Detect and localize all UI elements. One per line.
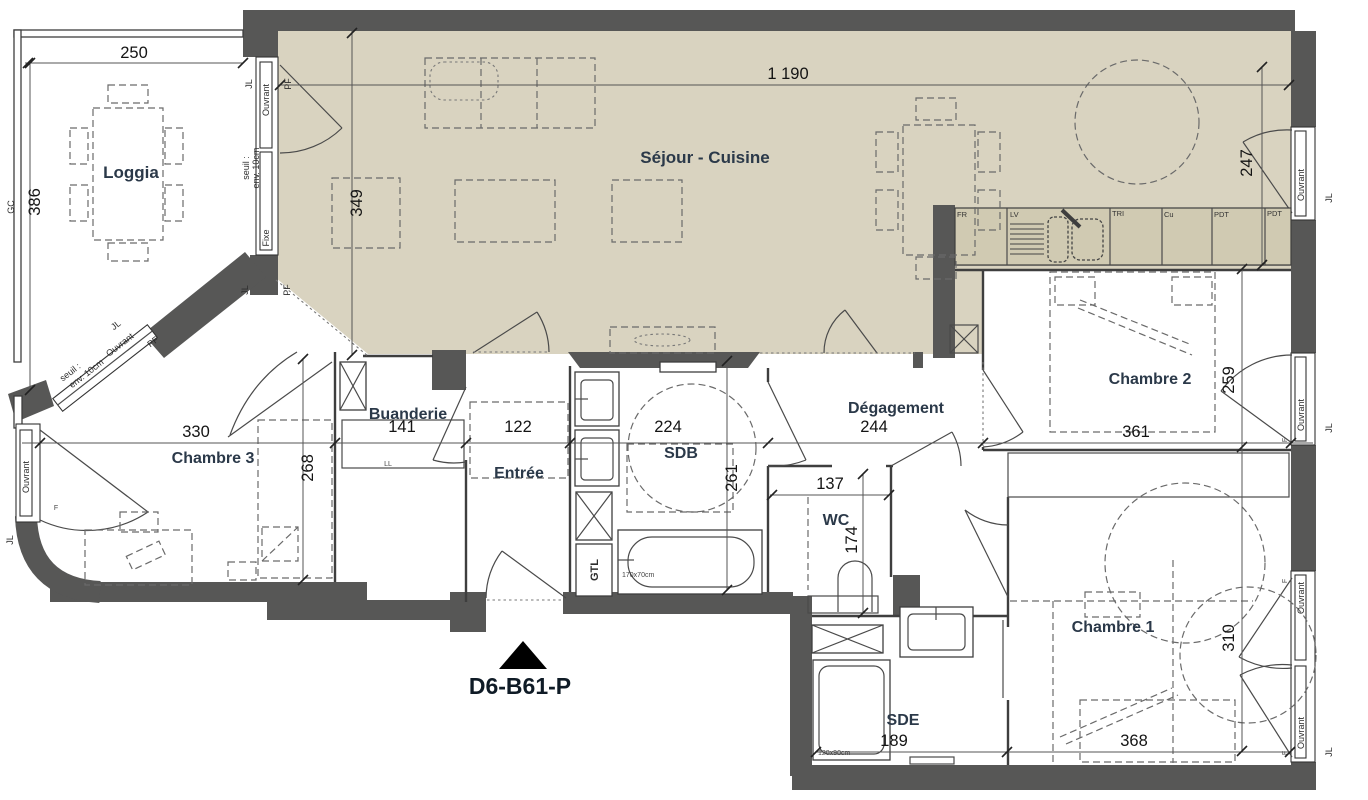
label-fixe: Fixe [261, 229, 271, 246]
label-ouvrant-ch3: Ouvrant [21, 460, 31, 493]
dim-sde-width: 189 [880, 732, 908, 750]
kitchen-label-tri: TRI [1112, 209, 1124, 218]
label-gc: GC [6, 200, 16, 214]
label-jl-diag: JL [109, 318, 123, 332]
sdb-shelf [660, 362, 716, 372]
dim-chambre1-width: 368 [1120, 732, 1148, 750]
room-label-sde: SDE [887, 712, 920, 729]
room-label-degagement: Dégagement [848, 400, 945, 417]
floor-plan-page: Loggia Séjour - Cuisine Buanderie Entrée… [0, 0, 1368, 800]
dim-degagement-width: 244 [860, 418, 888, 436]
label-f-w3b: F [1282, 751, 1289, 755]
chambre3-furniture [85, 420, 332, 585]
label-pf: PF [283, 78, 293, 90]
room-label-chambre3: Chambre 3 [172, 450, 255, 467]
label-f-ch3: F [54, 505, 58, 512]
dim-sdb-height: 261 [723, 464, 741, 492]
dim-buanderie-width: 141 [388, 418, 416, 436]
kitchen-label-pdt1: PDT [1214, 210, 1229, 219]
dim-sejour-width: 1 190 [767, 65, 808, 83]
desk-chair [126, 541, 165, 570]
wardrobe [258, 420, 332, 578]
bathtub [618, 530, 762, 594]
room-label-chambre2: Chambre 2 [1109, 371, 1192, 388]
dim-chambre3-height: 268 [299, 454, 317, 482]
kitchen-label-pdt2: PDT [1267, 209, 1282, 218]
toilet-icon [808, 561, 878, 613]
room-label-loggia: Loggia [103, 163, 159, 182]
label-ouvrant-w3a: Ouvrant [1296, 581, 1306, 614]
dim-chambre2-height: 259 [1220, 366, 1238, 394]
sdb-basins [575, 372, 619, 486]
label-jl: JL [244, 79, 254, 89]
room-label-chambre1: Chambre 1 [1072, 619, 1155, 636]
entrance-triangle-icon [499, 641, 547, 669]
label-ouvrant-w3b: Ouvrant [1296, 716, 1306, 749]
dim-loggia-width: 250 [120, 44, 148, 62]
kitchen-label-fr: FR [957, 210, 968, 219]
room-label-entree: Entrée [494, 465, 544, 482]
room-label-sdb: SDB [664, 445, 698, 462]
room-label-sejour: Séjour - Cuisine [640, 148, 769, 167]
label-seuil-1: seuil : [241, 156, 251, 180]
chambre2-bed [1050, 272, 1215, 432]
dim-sdb-width: 224 [654, 418, 682, 436]
dim-wc-width: 137 [816, 475, 844, 493]
desk [85, 530, 192, 585]
dim-wc-height: 174 [843, 526, 861, 554]
dim-sejour-height: 349 [348, 189, 366, 217]
dishwasher-icon [1010, 224, 1044, 254]
label-bathtub-size: 170x70cm [622, 572, 654, 579]
label-ll: LL [384, 461, 392, 468]
dim-chambre1-height: 310 [1220, 624, 1238, 652]
plan-id: D6-B61-P [469, 673, 571, 699]
loggia-walls [14, 30, 243, 428]
label-shower-size: 120x90cm [818, 750, 850, 757]
label-gtl: GTL [589, 559, 601, 581]
kitchen-label-lv: LV [1010, 210, 1019, 219]
label-seuil-2: env. 10cm [251, 148, 261, 189]
label-jl-w2: JL [1324, 423, 1334, 433]
label-jl-2: JL [240, 285, 250, 295]
kitchen-label-cu: Cu [1164, 210, 1174, 219]
dim-chambre2-width: 361 [1122, 423, 1150, 441]
label-f-w2: F [1282, 438, 1289, 442]
shower [813, 660, 890, 760]
dim-chambre3-width: 330 [182, 423, 210, 441]
dim-loggia-height: 386 [26, 188, 44, 216]
label-jl-ch3: JL [5, 535, 15, 545]
chambre1-bed [1080, 700, 1235, 762]
label-ouvrant-w1: Ouvrant [1296, 168, 1306, 201]
label-ouvrant: Ouvrant [261, 83, 271, 116]
chambre1-furniture [1010, 483, 1316, 763]
label-jl-w1: JL [1324, 193, 1334, 203]
label-f-w3a: F [1282, 579, 1289, 583]
dim-sejour-right: 247 [1238, 149, 1256, 177]
floor-plan-canvas: Loggia Séjour - Cuisine Buanderie Entrée… [0, 0, 1368, 800]
dim-entree-width: 122 [504, 418, 532, 436]
label-pf-2: PF [282, 284, 292, 296]
label-jl-w3: JL [1324, 747, 1334, 757]
label-ouvrant-w2: Ouvrant [1296, 398, 1306, 431]
